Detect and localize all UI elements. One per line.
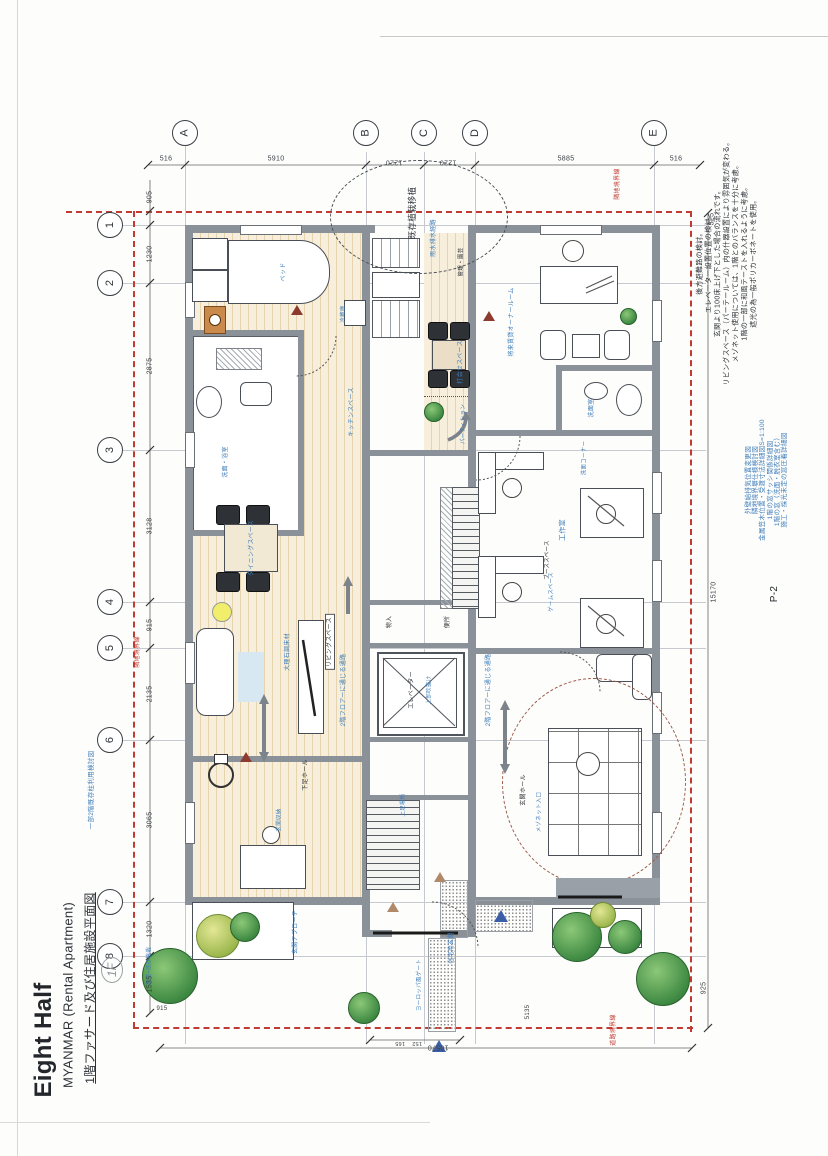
grid-bubble-row-2: 2 [97, 270, 123, 296]
grid-bubble-label: 7 [104, 899, 116, 905]
sheet-subtitle: MYANMAR (Rental Apartment) [62, 902, 75, 1088]
plan-label: 2階フロアーに通じる通路 [341, 654, 347, 727]
grid-bubble-label: 3 [104, 447, 116, 453]
margin-note: 後方避難路の検討。 [697, 229, 704, 295]
plan-label: 管理・園芸 [459, 247, 465, 276]
plan-label: 2階フロアーに通じる通路 [486, 654, 492, 727]
plan-label: 一部2階既存柱利用検討図 [89, 751, 96, 830]
dimension-label: 915 [147, 619, 154, 632]
plan-label: 住宅用玄関 [449, 932, 455, 964]
plan-label: ヨーロッパ風ゲート [417, 959, 423, 1011]
plan-label: 下足ホール [303, 759, 309, 791]
grid-bubble-label: A [179, 129, 191, 136]
plan-label: メゾネット入口 [537, 792, 543, 833]
plan-label: 洗面・浴室 [223, 446, 229, 478]
margin-note: エレベーター設置位置の検討。 [706, 211, 713, 313]
plan-label: 洗面コーナー [582, 441, 588, 476]
plan-label: 雨水排水経路 [431, 219, 437, 257]
grid-bubble-label: D [469, 129, 481, 137]
dimension-label: 1320 [147, 921, 154, 938]
margin-note-blue: 施工・採光未定の窓圧着詳細図 [782, 432, 789, 527]
dimension-label: 3065 [147, 812, 154, 829]
dimension-label: 15170 [711, 582, 718, 603]
grid-bubble-row-5: 5 [97, 635, 123, 661]
handwritten-mark: 1F [101, 957, 123, 983]
dimension-label: 5885 [558, 156, 575, 163]
dimension-label: 905 [147, 191, 154, 204]
plan-label: 上足場所 [401, 793, 407, 816]
grid-bubble-label: 2 [104, 280, 116, 286]
grid-bubble-row-6: 6 [97, 727, 123, 753]
dimension-label: 5910 [268, 156, 285, 163]
sheet-number: P-2 [770, 586, 780, 602]
plan-label: 工作室 [560, 519, 567, 541]
plan-label: 便所 [445, 616, 451, 629]
grid-bubble-row-1: 1 [97, 212, 123, 238]
plan-label: ゲームスペース [549, 572, 555, 612]
plan-label: キッチンスペース [349, 387, 355, 437]
plan-label: 物入 [387, 616, 393, 629]
margin-note: 玄関より100床上げ下とした場合の流れです。 [715, 187, 722, 337]
grid-bubble-row-4: 4 [97, 589, 123, 615]
grid-bubble-label: E [648, 129, 660, 136]
plan-label: エレベーター [409, 671, 415, 709]
dimension-label: 3128 [147, 518, 154, 535]
grid-bubble-col-A: A [172, 120, 198, 146]
grid-bubble-label: 6 [104, 737, 116, 743]
plan-label: リビングスペース [325, 614, 335, 670]
grid-bubble-col-E: E [641, 120, 667, 146]
drawing-title: 1階ファサード及び住居施設平面図 [84, 892, 96, 1083]
grid-bubble-col-C: C [411, 120, 437, 146]
plan-label: 玄関アプローチ [293, 910, 299, 954]
margin-note-blue: 金属笠木位置・受渡寸法詳細図S=1:100 [760, 419, 767, 541]
margin-note: メゾネット使用については、1階とのバランスを十分に考慮。 [733, 162, 740, 363]
margin-note: リビングスペース（パーテールーム）内の什器設置により雰囲気が変わる。 [724, 138, 731, 385]
plan-label: 打合せスペース [458, 340, 464, 383]
dimension-label: 516 [160, 156, 173, 163]
grid-bubble-col-D: D [462, 120, 488, 146]
dimension-label: 1535 [147, 976, 154, 993]
plan-label: 上部吹抜け [427, 675, 433, 704]
dimension-label: 2875 [147, 358, 154, 375]
plan-label: 玄関収納 [277, 808, 283, 831]
dimension-label: 1220 [386, 159, 403, 166]
dimension-label: 925 [701, 982, 708, 995]
grid-bubble-label: 1 [104, 222, 116, 228]
dimension-label: 2135 [147, 686, 154, 703]
margin-note: 1階の一部に和風テーストを入れるように考慮。 [742, 183, 749, 340]
dimension-label: 165 [395, 1039, 405, 1045]
dimension-label: 152 [412, 1039, 422, 1045]
plan-label: 将来賃貸オーナールーム [509, 287, 515, 356]
sheet-title: Eight Half [32, 983, 56, 1098]
plan-label: 冷蔵庫 [341, 305, 347, 322]
plan-label: 洗面室 [589, 399, 595, 418]
dimension-label: 5135 [525, 1005, 531, 1020]
plan-label: 隣地境界線 [615, 168, 621, 200]
annotation-layer: ベッド洗面・浴室ダイニングスペースリビングスペース大理石調床材キッチンスペース冷… [0, 0, 828, 1156]
grid-bubble-label: C [418, 129, 430, 137]
grid-bubble-row-3: 3 [97, 437, 123, 463]
grid-bubble-label: B [360, 129, 372, 136]
plan-label: ダイニングスペース [249, 520, 255, 576]
dimension-label: 1230 [147, 246, 154, 263]
floor-plan-sheet: ベッド洗面・浴室ダイニングスペースリビングスペース大理石調床材キッチンスペース冷… [0, 0, 828, 1156]
plan-label: ベッド [281, 263, 287, 282]
dimension-label: 10570 [428, 1044, 449, 1051]
plan-label: 道路境界線 [611, 1014, 617, 1046]
dimension-label: 1220 [440, 159, 457, 166]
plan-label: 大理石調床材 [285, 633, 291, 671]
grid-bubble-row-7: 7 [97, 889, 123, 915]
dimension-label: 915 [157, 1006, 168, 1012]
margin-note: 遮光の為一般ポリカーボネートを使用。 [751, 196, 758, 327]
grid-bubble-col-B: B [353, 120, 379, 146]
grid-bubble-label: 5 [104, 645, 116, 651]
dimension-label: 516 [670, 156, 683, 163]
plan-label: パーティション [461, 404, 467, 444]
plan-label: 既存植栽移植 [408, 187, 417, 240]
grid-bubble-label: 4 [104, 599, 116, 605]
plan-label: 玄関ホール [521, 774, 527, 806]
plan-label: 隣地境界線 [135, 636, 141, 668]
